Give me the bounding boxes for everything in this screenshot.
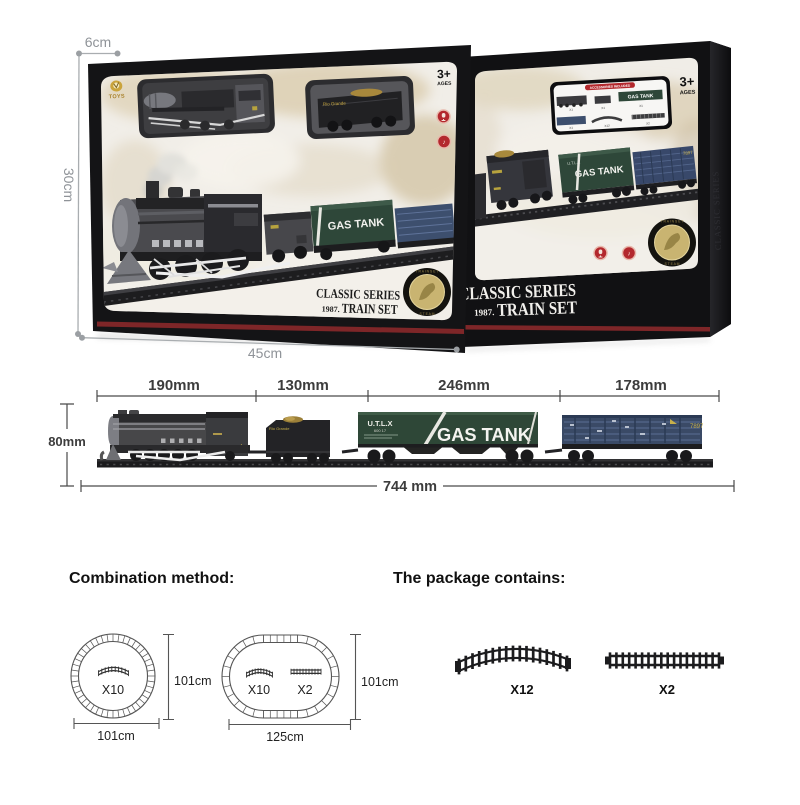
svg-text:T R A I N S E T: T R A I N S E T (661, 220, 684, 224)
svg-text:X1: X1 (569, 108, 573, 112)
svg-text:125cm: 125cm (266, 730, 304, 744)
svg-text:101cm: 101cm (361, 675, 399, 689)
svg-text:GAS TANK: GAS TANK (437, 424, 532, 445)
svg-text:♪: ♪ (627, 251, 630, 258)
svg-text:AGES: AGES (437, 81, 452, 88)
svg-text:7897: 7897 (690, 424, 704, 430)
svg-text:3+: 3+ (437, 67, 451, 82)
svg-text:6cm: 6cm (85, 34, 111, 50)
svg-text:TRAIN SET: TRAIN SET (497, 297, 578, 320)
svg-text:101cm: 101cm (97, 729, 135, 743)
svg-text:30cm: 30cm (61, 168, 77, 202)
svg-text:744 mm: 744 mm (383, 479, 437, 495)
svg-text:X2: X2 (646, 121, 650, 125)
svg-text:600 17: 600 17 (374, 428, 387, 433)
svg-text:T R A I N S E T: T R A I N S E T (416, 270, 439, 274)
svg-text:1987.: 1987. (474, 307, 495, 318)
svg-text:X12: X12 (604, 124, 610, 128)
svg-text:130mm: 130mm (277, 377, 329, 394)
svg-text:AGES: AGES (680, 90, 696, 97)
svg-text:X10: X10 (102, 683, 124, 697)
svg-text:X2: X2 (659, 682, 675, 697)
svg-text:♪: ♪ (442, 139, 445, 146)
svg-text:X2: X2 (297, 683, 312, 697)
svg-text:X12: X12 (510, 682, 533, 697)
svg-text:101cm: 101cm (174, 674, 212, 688)
svg-text:S T E A M: S T E A M (665, 262, 680, 266)
svg-text:Combination method:: Combination method: (69, 570, 234, 587)
svg-text:3+: 3+ (679, 74, 695, 90)
svg-text:Rio Grande: Rio Grande (323, 101, 347, 107)
svg-text:X1: X1 (569, 126, 573, 130)
svg-text:TRAIN SET: TRAIN SET (342, 301, 398, 317)
svg-text:U.T.L.X: U.T.L.X (367, 419, 392, 428)
svg-text:190mm: 190mm (148, 377, 200, 394)
svg-text:45cm: 45cm (248, 345, 282, 361)
svg-text:178mm: 178mm (615, 377, 667, 394)
svg-text:80mm: 80mm (48, 434, 86, 449)
svg-text:X10: X10 (248, 683, 270, 697)
svg-text:1987.: 1987. (322, 305, 340, 314)
svg-text:X1: X1 (601, 106, 605, 110)
svg-text:X1: X1 (639, 104, 643, 108)
svg-text:246mm: 246mm (438, 377, 490, 394)
svg-text:S T E A M: S T E A M (420, 312, 435, 316)
svg-text:Rio Grande: Rio Grande (269, 426, 290, 431)
svg-text:The package contains:: The package contains: (393, 570, 566, 587)
svg-text:TOYS: TOYS (109, 94, 125, 101)
